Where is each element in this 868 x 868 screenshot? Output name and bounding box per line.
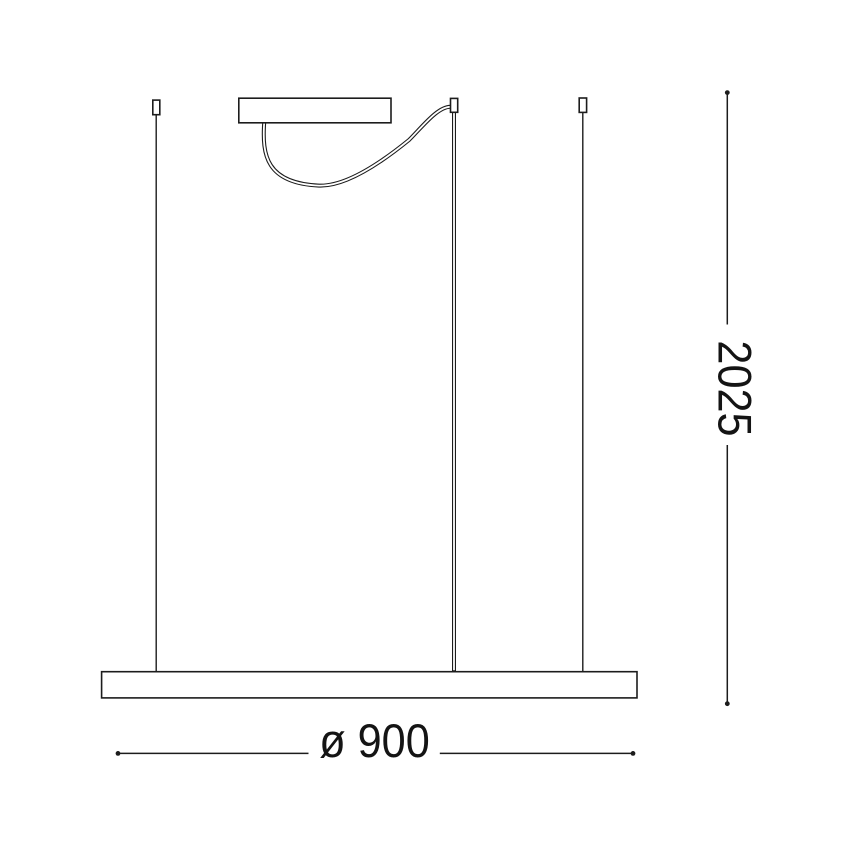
svg-text:2025: 2025 xyxy=(708,340,761,436)
svg-text:ø 900: ø 900 xyxy=(319,714,430,767)
